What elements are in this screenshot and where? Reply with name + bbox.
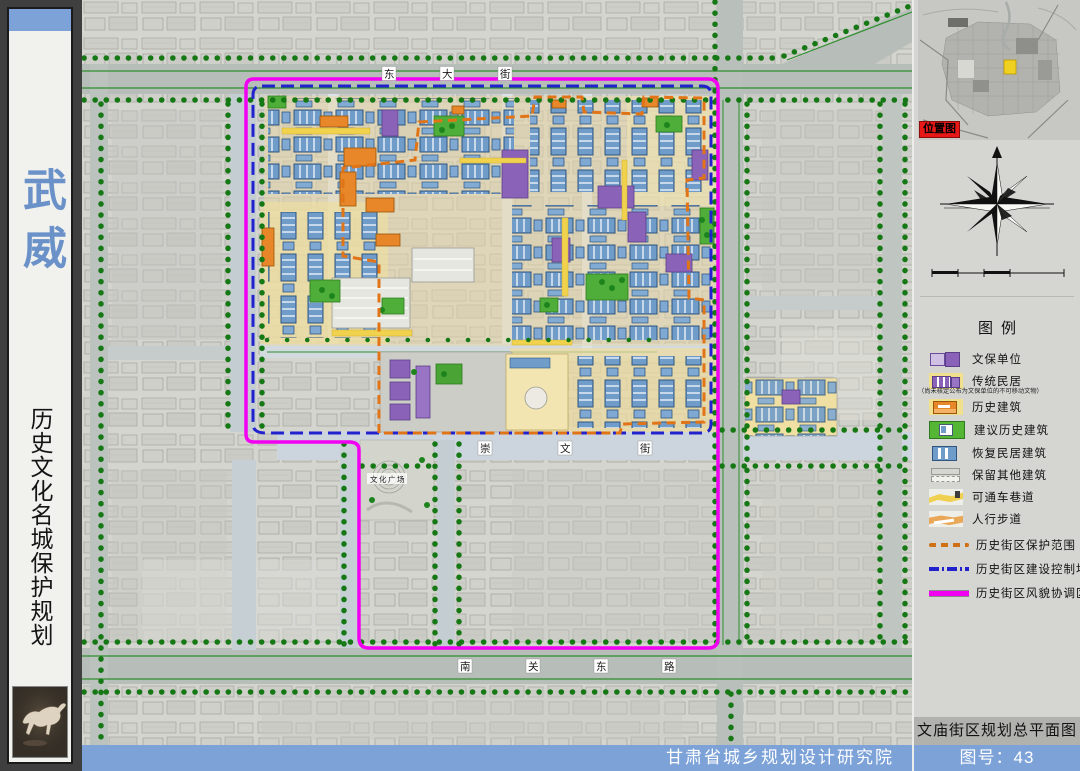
legend-item-restored: 恢复民居建筑 (914, 445, 1080, 461)
legend-item-coordination-line: 历史街区风貌协调区 (914, 585, 1080, 601)
proposed-historic-swatch-icon (929, 421, 965, 439)
legend-item-historic: 历史建筑 (914, 399, 1080, 415)
control-zone-swatch-icon (929, 567, 969, 571)
legend-item-heritage-unit: 文保单位 (914, 351, 1080, 367)
legend-item-footpath: 人行步道 (914, 511, 1080, 527)
footpath-swatch-icon (929, 511, 963, 527)
historic-building-swatch-icon (929, 399, 963, 415)
restored-dwelling-swatch-icon (929, 445, 963, 461)
east-colored-cluster (745, 378, 837, 436)
left-title-column: 武威 历史文化名城保护规划 (0, 0, 82, 771)
place-label-square: 文化广场 (370, 474, 406, 484)
drawing-number: 图号：43 (914, 745, 1080, 771)
legend-item-vehicle-lane: 可通车巷道 (914, 489, 1080, 505)
site-marker (1004, 60, 1016, 74)
institute-bar: 甘肃省城乡规划设计研究院 (82, 745, 912, 771)
legend-item-traditional: 传统民居 （尚未核定公布为文保单位的不可移动文物） (914, 373, 1080, 395)
legend: 文保单位 传统民居 （尚未核定公布为文保单位的不可移动文物） 历史建筑 建议历史… (914, 351, 1080, 601)
compass-rose (922, 146, 1072, 263)
location-map-graphic (918, 0, 1080, 140)
legend-separator (920, 296, 1074, 297)
plan-sheet: 武威 历史文化名城保护规划 (0, 0, 1080, 771)
road-label-top: 东大街 (384, 68, 558, 81)
retained-building-swatch-icon (929, 467, 963, 483)
title-panel: 武威 历史文化名城保护规划 (7, 7, 73, 764)
city-name: 武威 (8, 167, 72, 283)
confucian-temple-complex (380, 352, 512, 432)
map-canvas: 东大街 崇文街 南关东路 文化广场 (82, 0, 912, 745)
road-label-middle: 崇文街 (480, 442, 720, 455)
traditional-dwelling-note: （尚未核定公布为文保单位的不可移动文物） (918, 385, 1074, 395)
plan-title-vertical: 历史文化名城保护规划 (23, 407, 57, 647)
location-inset-map: 位置图 (918, 0, 1080, 140)
legend-title: 图例 (914, 317, 1080, 338)
title-panel-header-bar (9, 9, 71, 31)
protection-boundary-swatch-icon (929, 543, 969, 547)
bronze-horse-image (12, 686, 68, 758)
road-label-bottom: 南关东路 (460, 660, 732, 673)
scale-bar (922, 265, 1072, 286)
school-block (506, 354, 568, 430)
legend-item-retained: 保留其他建筑 (914, 467, 1080, 483)
right-panel: 位置图 (912, 0, 1080, 771)
master-plan-map: 东大街 崇文街 南关东路 文化广场 (82, 0, 912, 745)
vehicle-lane-swatch-icon (929, 489, 963, 505)
legend-item-control-line: 历史街区建设控制地带 (914, 561, 1080, 577)
coordination-zone-swatch-icon (929, 591, 969, 596)
institute-name: 甘肃省城乡规划设计研究院 (666, 748, 894, 767)
inset-label: 位置图 (919, 121, 960, 138)
heritage-unit-swatch-icon (929, 351, 963, 367)
legend-item-proposed-historic: 建议历史建筑 (914, 421, 1080, 439)
drawing-title: 文庙街区规划总平面图 (914, 717, 1080, 745)
legend-item-protection-line: 历史街区保护范围 (914, 537, 1080, 553)
horse-silhouette (13, 687, 68, 755)
